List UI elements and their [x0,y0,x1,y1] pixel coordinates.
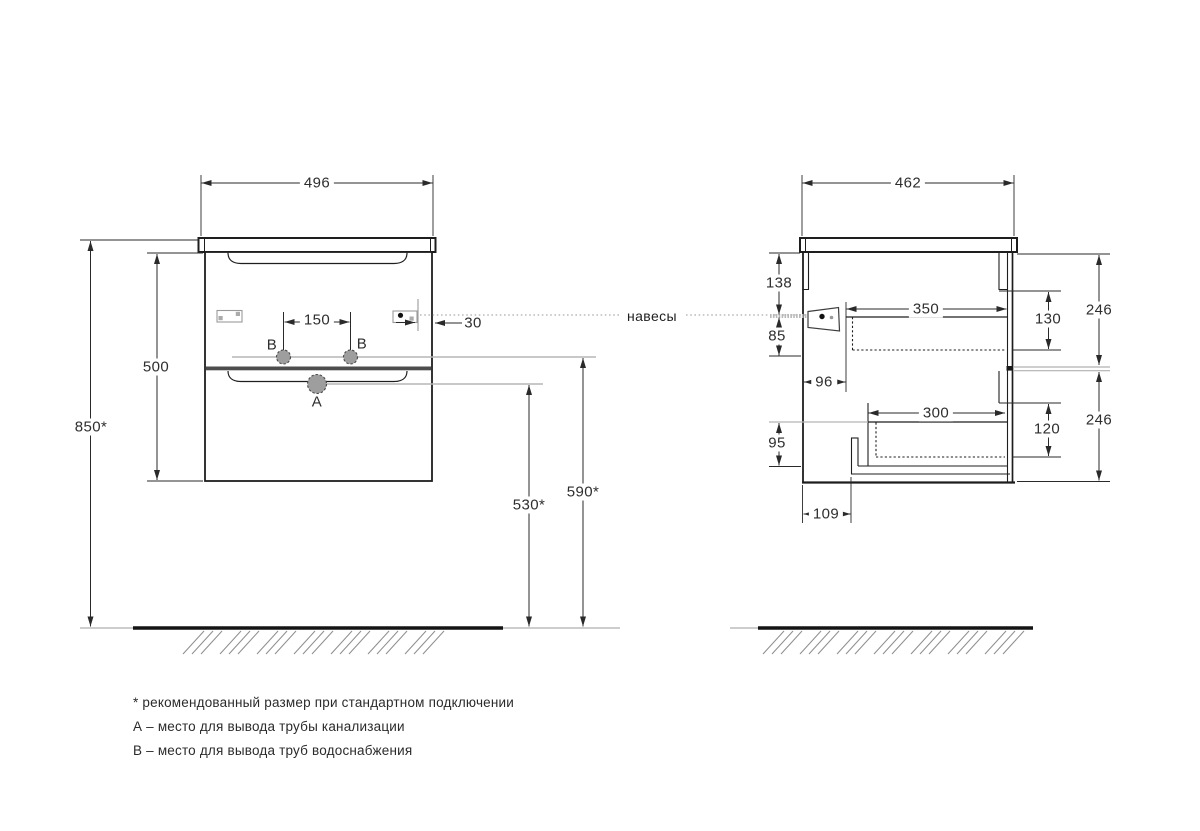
hole-b-left [277,350,291,364]
note-drain-location: А – место для вывода трубы канализации [133,720,405,734]
mount-bracket-left [217,311,242,323]
floor-hatching-right [763,631,1024,654]
technical-drawing-page: 496 500 850* 150 30 530* 590* A B B наве… [0,0,1200,831]
dim-label-130: 130 [1031,311,1065,328]
bracket-top-right [999,252,1007,290]
dim-label-109: 109 [809,506,843,523]
dim-label-246-bottom: 246 [1082,412,1116,429]
side-view-drawing [769,175,1110,523]
floor-left [80,628,620,654]
dim-label-850: 850* [71,419,111,436]
note-recommended-size: * рекомендованный размер при стандартном… [133,696,514,710]
dim-label-246-top: 246 [1082,302,1116,319]
hanger-screw [819,314,824,319]
countertop-side [800,238,1017,252]
dim-label-590: 590* [563,484,603,501]
dim-label-30: 30 [464,316,482,331]
label-a: A [312,395,322,410]
hole-a-drain [308,375,327,394]
drawer-divider [206,367,431,371]
dim-label-150: 150 [300,312,334,329]
countertop [199,238,436,252]
hangers-callout-label: навесы [624,309,680,323]
dim-label-95: 95 [764,435,790,452]
hanger-pin [830,316,834,320]
dim-label-300: 300 [919,405,953,422]
dim-label-350: 350 [909,301,943,318]
floor-right [730,628,1033,654]
dim-label-462: 462 [891,175,925,192]
floor-hatching-left [183,631,444,654]
dim-label-85: 85 [764,328,790,345]
note-water-location: В – место для вывода труб водоснабжения [133,744,412,758]
dim-label-500: 500 [139,359,173,376]
divider-block [1007,366,1014,371]
dim-label-138: 138 [762,275,796,292]
dim-label-530: 530* [509,497,549,514]
drain-pipe [851,438,1010,474]
dim-label-120: 120 [1030,421,1064,438]
hole-b-right [344,350,358,364]
front-view-drawing [80,175,596,627]
dim-label-496: 496 [300,175,334,192]
label-b-right: B [357,337,367,352]
label-b-left: B [267,338,277,353]
hanger-body [808,308,840,332]
dim-label-96: 96 [811,374,837,391]
